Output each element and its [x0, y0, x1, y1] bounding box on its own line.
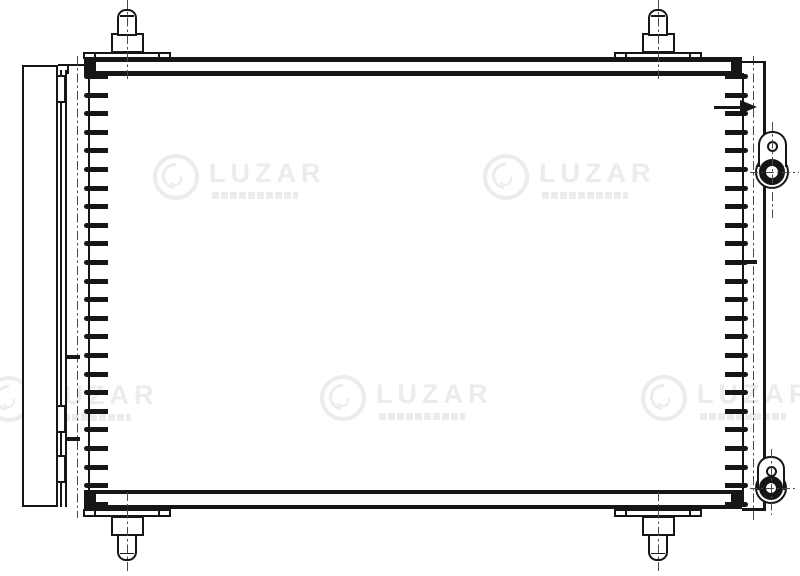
core-bottom-bar-left-cap — [84, 490, 96, 508]
right-fin — [725, 279, 748, 284]
core-bottom-bar-lower-line — [84, 505, 742, 510]
core-top-bar-right-cap — [731, 57, 742, 75]
right-fin — [725, 297, 748, 302]
left-fin — [84, 483, 108, 488]
pin-centerline — [658, 0, 659, 80]
flow-arrow-line — [714, 106, 742, 109]
left-fin — [84, 390, 108, 395]
luzar-watermark-tagline-bar — [542, 192, 628, 199]
flow-arrow-icon — [740, 100, 757, 114]
side-plate-line-outer — [60, 70, 62, 507]
bracket-top-centerline-v — [772, 122, 773, 218]
luzar-watermark-text: LUZAR — [697, 381, 800, 408]
left-side-panel — [22, 65, 58, 507]
core-bottom-bar-right-cap — [731, 490, 742, 508]
left-fin — [84, 111, 108, 116]
right-fin — [725, 223, 748, 228]
core-top-bar-upper-line — [84, 57, 742, 62]
left-fin — [84, 316, 108, 321]
pin-centerline — [127, 492, 128, 574]
left-fin — [84, 427, 108, 432]
right-fin — [725, 390, 748, 395]
right-fin — [725, 483, 748, 488]
left-fin — [84, 297, 108, 302]
left-fin — [84, 279, 108, 284]
right-fin — [725, 186, 748, 191]
left-fin — [84, 260, 108, 265]
luzar-watermark-text: LUZAR — [539, 160, 655, 187]
side-plate-top-notch — [67, 64, 69, 74]
core-top-bar-left-cap — [84, 57, 96, 75]
left-fin — [84, 353, 108, 358]
right-fin — [725, 353, 748, 358]
receiver-drier-line — [763, 61, 766, 511]
right-fin-centerline — [753, 56, 754, 520]
left-fin — [84, 186, 108, 191]
pin-plate-divider — [625, 511, 627, 517]
right-fin — [725, 148, 748, 153]
core-top-bar-lower-line — [84, 71, 742, 76]
luzar-watermark-text: LUZAR — [376, 381, 492, 408]
left-fin — [84, 93, 108, 98]
condenser-technical-drawing: LUZARLUZARLUZARLUZARLUZAR — [0, 0, 800, 576]
pin-plate-divider — [94, 511, 96, 517]
pin-plate-divider — [158, 511, 160, 517]
left-fin-rail — [88, 73, 90, 504]
luzar-watermark-text: LUZAR — [209, 160, 325, 187]
left-fin — [84, 334, 108, 339]
right-fin — [725, 241, 748, 246]
right-fin — [725, 316, 748, 321]
left-fin-centerline — [77, 56, 78, 518]
right-fin — [725, 465, 748, 470]
panel-top-step-line — [58, 64, 86, 66]
bracket-bottom-centerline-h — [750, 488, 798, 489]
left-fin — [84, 130, 108, 135]
right-fin — [725, 446, 748, 451]
right-fin — [725, 427, 748, 432]
bracket-top-centerline-h — [750, 172, 799, 173]
side-plate-clip — [56, 455, 66, 483]
luzar-watermark: LUZAR — [153, 152, 323, 208]
drier-bottom-connector — [742, 508, 765, 511]
pin-centerline — [127, 0, 128, 80]
left-fin — [84, 204, 108, 209]
left-baffle-tick — [67, 355, 80, 359]
left-fin — [84, 465, 108, 470]
left-fin — [84, 241, 108, 246]
left-fin — [84, 167, 108, 172]
pin-plate-divider — [689, 511, 691, 517]
right-fin — [725, 93, 748, 98]
pin-centerline — [658, 492, 659, 574]
luzar-watermark-tagline-bar — [379, 413, 465, 420]
left-baffle-tick — [67, 437, 80, 441]
right-fin — [725, 334, 748, 339]
right-fin-rail — [742, 73, 744, 504]
luzar-watermark-tagline-bar — [212, 192, 298, 199]
luzar-watermark: LUZAR — [483, 152, 653, 208]
drier-top-connector — [742, 61, 765, 63]
right-fin — [725, 130, 748, 135]
left-fin — [84, 409, 108, 414]
left-fin — [84, 372, 108, 377]
right-fin — [725, 167, 748, 172]
side-plate-line-inner — [65, 70, 67, 507]
bracket-bottom-centerline-v — [771, 449, 772, 515]
right-fin — [725, 372, 748, 377]
right-fin — [725, 204, 748, 209]
side-plate-clip — [56, 75, 66, 103]
side-plate-clip — [56, 405, 66, 433]
left-fin — [84, 446, 108, 451]
left-fin — [84, 223, 108, 228]
luzar-watermark: LUZAR — [641, 373, 800, 429]
right-baffle-tick — [742, 260, 757, 264]
core-bottom-bar-upper-line — [84, 490, 742, 494]
luzar-watermark: LUZAR — [320, 373, 490, 429]
right-fin — [725, 409, 748, 414]
left-fin — [84, 148, 108, 153]
